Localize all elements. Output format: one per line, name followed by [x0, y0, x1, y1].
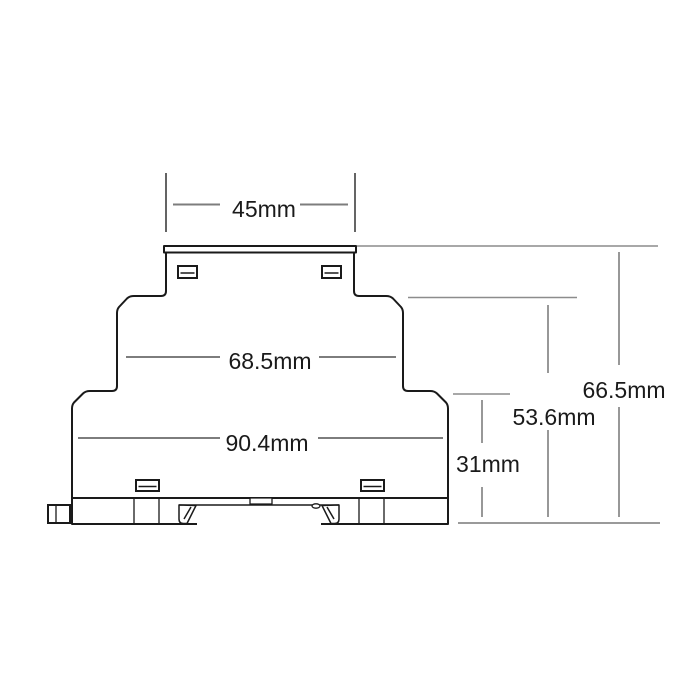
- dimension-top-width: 45mm: [166, 173, 355, 232]
- vent-slots: [136, 266, 384, 491]
- din-slot-center-tab: [250, 498, 272, 504]
- dimension-label-top-width: 45mm: [232, 196, 296, 222]
- vent-slot-bottom-right: [361, 480, 384, 491]
- dimension-lower-body-width: 90.4mm: [78, 430, 443, 456]
- device-top-cap: [164, 246, 356, 253]
- dimension-label-base-height: 31mm: [456, 451, 520, 477]
- device-profile: [72, 246, 448, 524]
- dimension-overall-height: 66.5mm: [582, 252, 665, 517]
- dimension-label-overall-height: 66.5mm: [582, 377, 665, 403]
- dimension-base-height: 31mm: [456, 400, 520, 517]
- dimension-label-lower-body-width: 90.4mm: [225, 430, 308, 456]
- device-left-side: [72, 253, 166, 499]
- dimension-upper-body-width: 68.5mm: [126, 348, 396, 374]
- dimension-label-upper-body-width: 68.5mm: [228, 348, 311, 374]
- dimension-body-height: 53.6mm: [512, 305, 595, 517]
- vent-slot-bottom-left: [136, 480, 159, 491]
- device-right-side: [354, 253, 448, 499]
- din-release-tab: [48, 505, 70, 523]
- din-rail-slot-opening: [197, 503, 321, 529]
- dimension-drawing: 45mm 68.5mm 90.4mm 66.5mm 53.6mm 31mm: [0, 0, 700, 700]
- din-slot-pin: [312, 504, 320, 508]
- vent-slot-top-left: [178, 266, 197, 278]
- din-release-tab-body: [48, 505, 70, 523]
- dimension-drawing-canvas: 45mm 68.5mm 90.4mm 66.5mm 53.6mm 31mm: [0, 0, 700, 700]
- vent-slot-top-right: [322, 266, 341, 278]
- dimension-label-body-height: 53.6mm: [512, 404, 595, 430]
